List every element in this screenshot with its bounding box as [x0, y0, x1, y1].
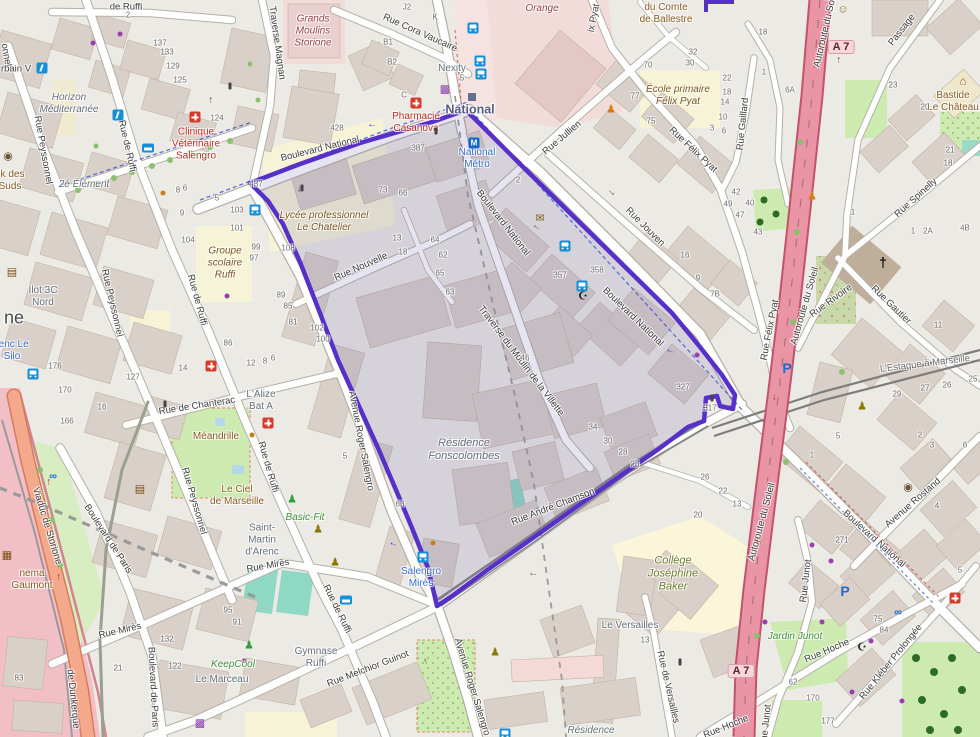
map-canvas [0, 0, 980, 737]
map-viewport[interactable]: de RuffiTraverse MagnanRue Cora Vaucaire… [0, 0, 980, 737]
